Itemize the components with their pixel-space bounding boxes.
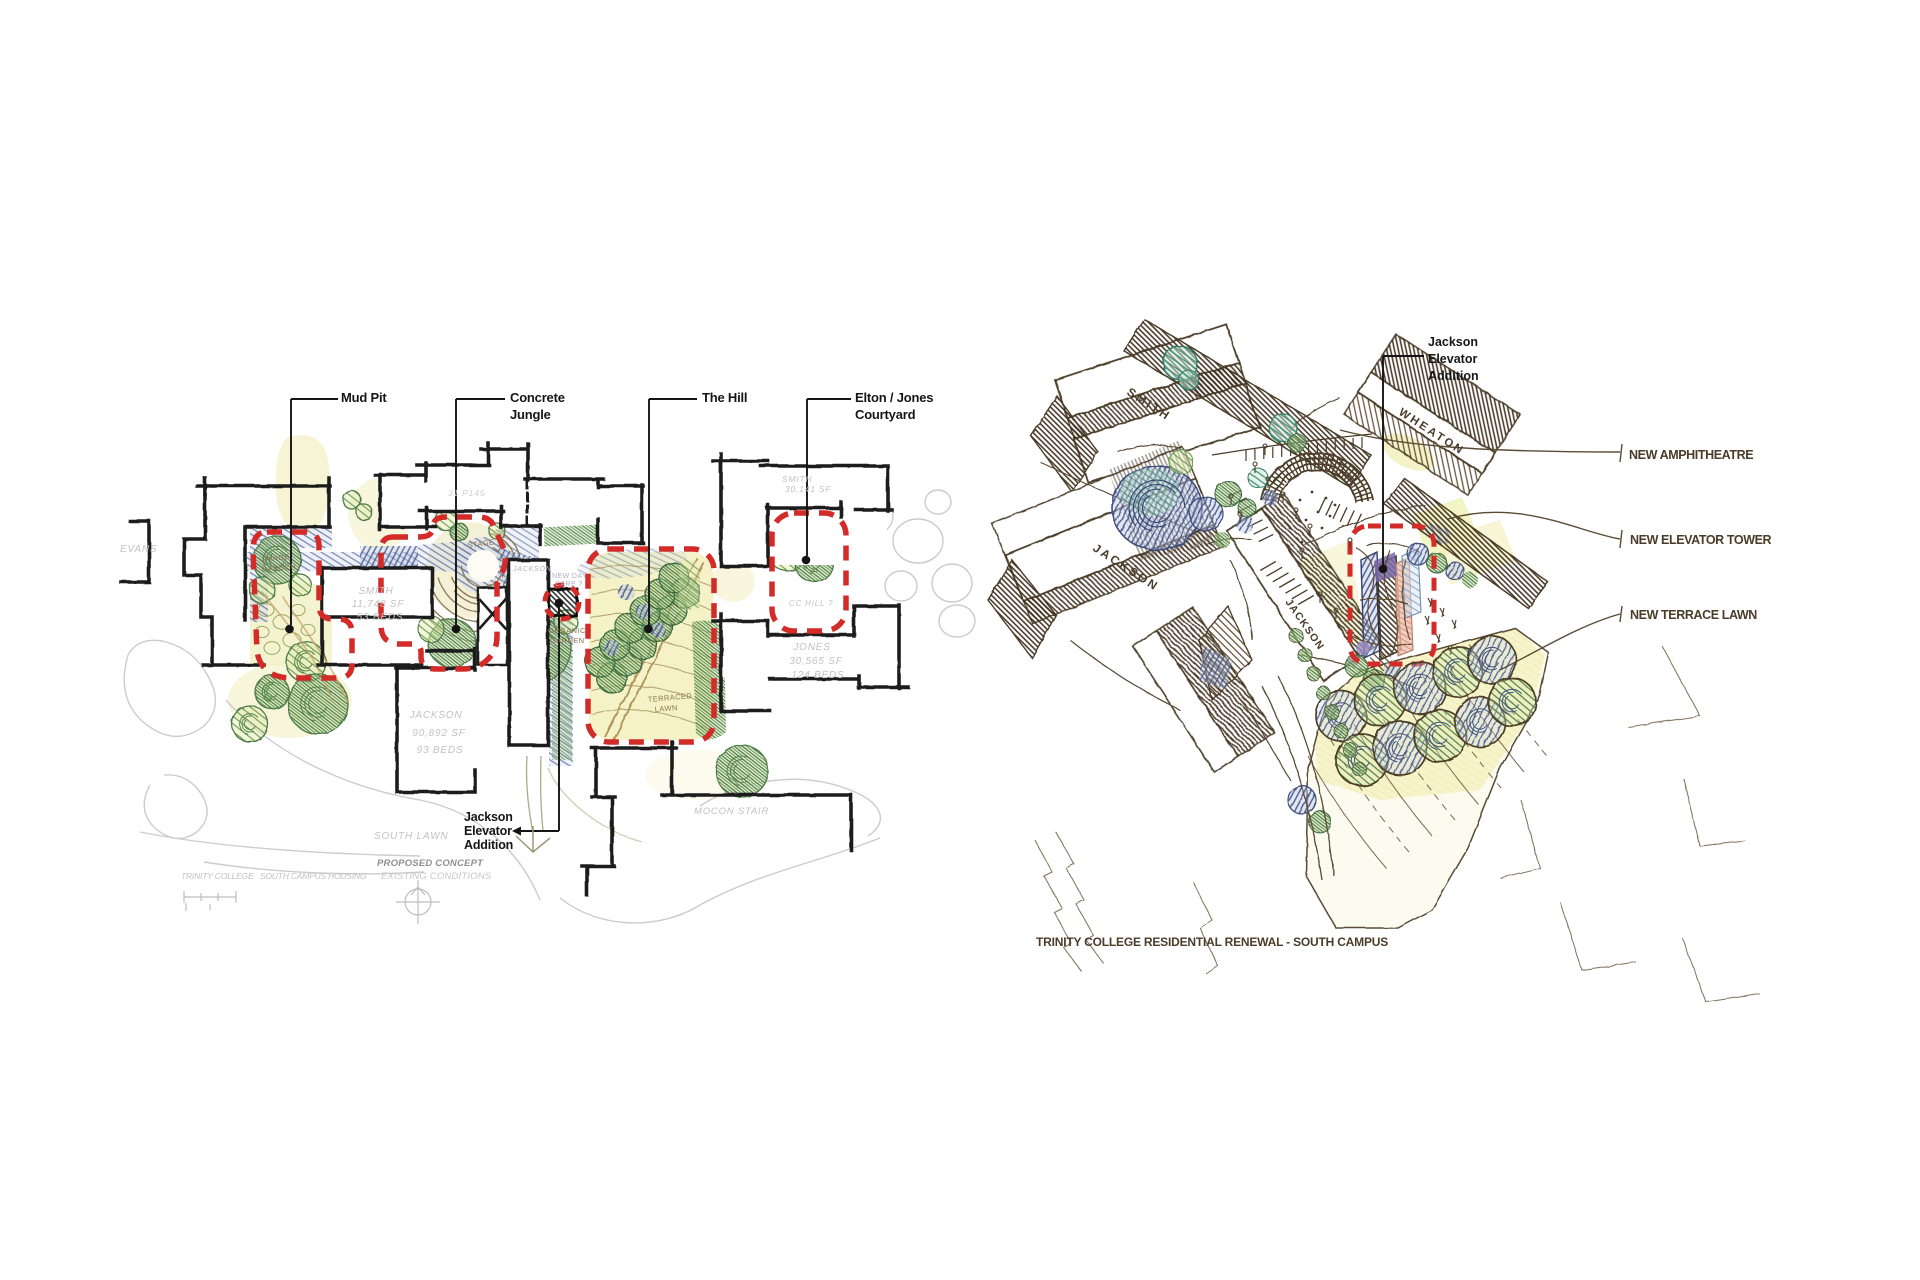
svg-text:SMITH: SMITH bbox=[782, 474, 813, 484]
svg-text:31 P145: 31 P145 bbox=[448, 488, 485, 498]
svg-text:CC HILL ?: CC HILL ? bbox=[789, 599, 833, 608]
svg-text:90,892 SF: 90,892 SF bbox=[412, 728, 465, 739]
svg-text:JACKSON: JACKSON bbox=[512, 566, 552, 573]
svg-text:TRINITY COLLEGE RESIDENTIAL RE: TRINITY COLLEGE RESIDENTIAL RENEWAL - SO… bbox=[1036, 935, 1388, 949]
svg-text:Mud Pit: Mud Pit bbox=[341, 390, 387, 405]
svg-text:EXISTING CONDITIONS: EXISTING CONDITIONS bbox=[381, 871, 492, 882]
svg-text:11,748 SF: 11,748 SF bbox=[352, 599, 405, 610]
svg-text:NEW TERRACE LAWN: NEW TERRACE LAWN bbox=[1630, 608, 1757, 622]
svg-text:Courtyard: Courtyard bbox=[855, 407, 916, 422]
svg-text:Jackson: Jackson bbox=[1428, 335, 1478, 349]
svg-text:SOUTH LAWN: SOUTH LAWN bbox=[374, 831, 449, 842]
svg-text:Addition: Addition bbox=[464, 838, 513, 852]
svg-text:53 BEDS: 53 BEDS bbox=[357, 612, 404, 623]
svg-text:30,565 SF: 30,565 SF bbox=[789, 656, 842, 667]
svg-text:The Hill: The Hill bbox=[702, 390, 747, 405]
svg-text:GARDEN: GARDEN bbox=[550, 636, 585, 645]
svg-text:CARE ?: CARE ? bbox=[555, 581, 583, 588]
svg-text:30,141 SF: 30,141 SF bbox=[785, 484, 831, 494]
svg-text:Jungle: Jungle bbox=[510, 407, 551, 422]
svg-text:ORGANIC: ORGANIC bbox=[548, 626, 586, 635]
svg-text:TRINITY COLLEGE SOUTH CAMPUS: TRINITY COLLEGE SOUTH CAMPUS HOUSING bbox=[181, 871, 367, 881]
svg-text:Jackson: Jackson bbox=[464, 810, 513, 824]
svg-text:SMITH: SMITH bbox=[358, 586, 393, 597]
svg-text:EVANS: EVANS bbox=[120, 544, 157, 555]
svg-text:Elton / Jones: Elton / Jones bbox=[855, 390, 933, 405]
svg-text:Elevator: Elevator bbox=[464, 824, 512, 838]
svg-text:93 BEDS: 93 BEDS bbox=[417, 745, 464, 756]
svg-text:NEW ELEVATOR TOWER: NEW ELEVATOR TOWER bbox=[1630, 533, 1772, 547]
svg-text:Concrete: Concrete bbox=[510, 390, 565, 405]
svg-text:NEW AMPHITHEATRE: NEW AMPHITHEATRE bbox=[1629, 448, 1753, 462]
svg-text:PROPOSED CONCEPT: PROPOSED CONCEPT bbox=[377, 858, 484, 869]
svg-text:124 BEDS: 124 BEDS bbox=[791, 670, 844, 681]
svg-text:JACKSON: JACKSON bbox=[409, 710, 463, 721]
svg-text:JONES: JONES bbox=[792, 642, 830, 653]
svg-text:MOCON STAIR: MOCON STAIR bbox=[694, 806, 769, 817]
svg-text:Addition: Addition bbox=[1428, 369, 1479, 383]
svg-text:Elevator: Elevator bbox=[1428, 352, 1477, 366]
svg-text:NEW DAY: NEW DAY bbox=[552, 573, 587, 580]
